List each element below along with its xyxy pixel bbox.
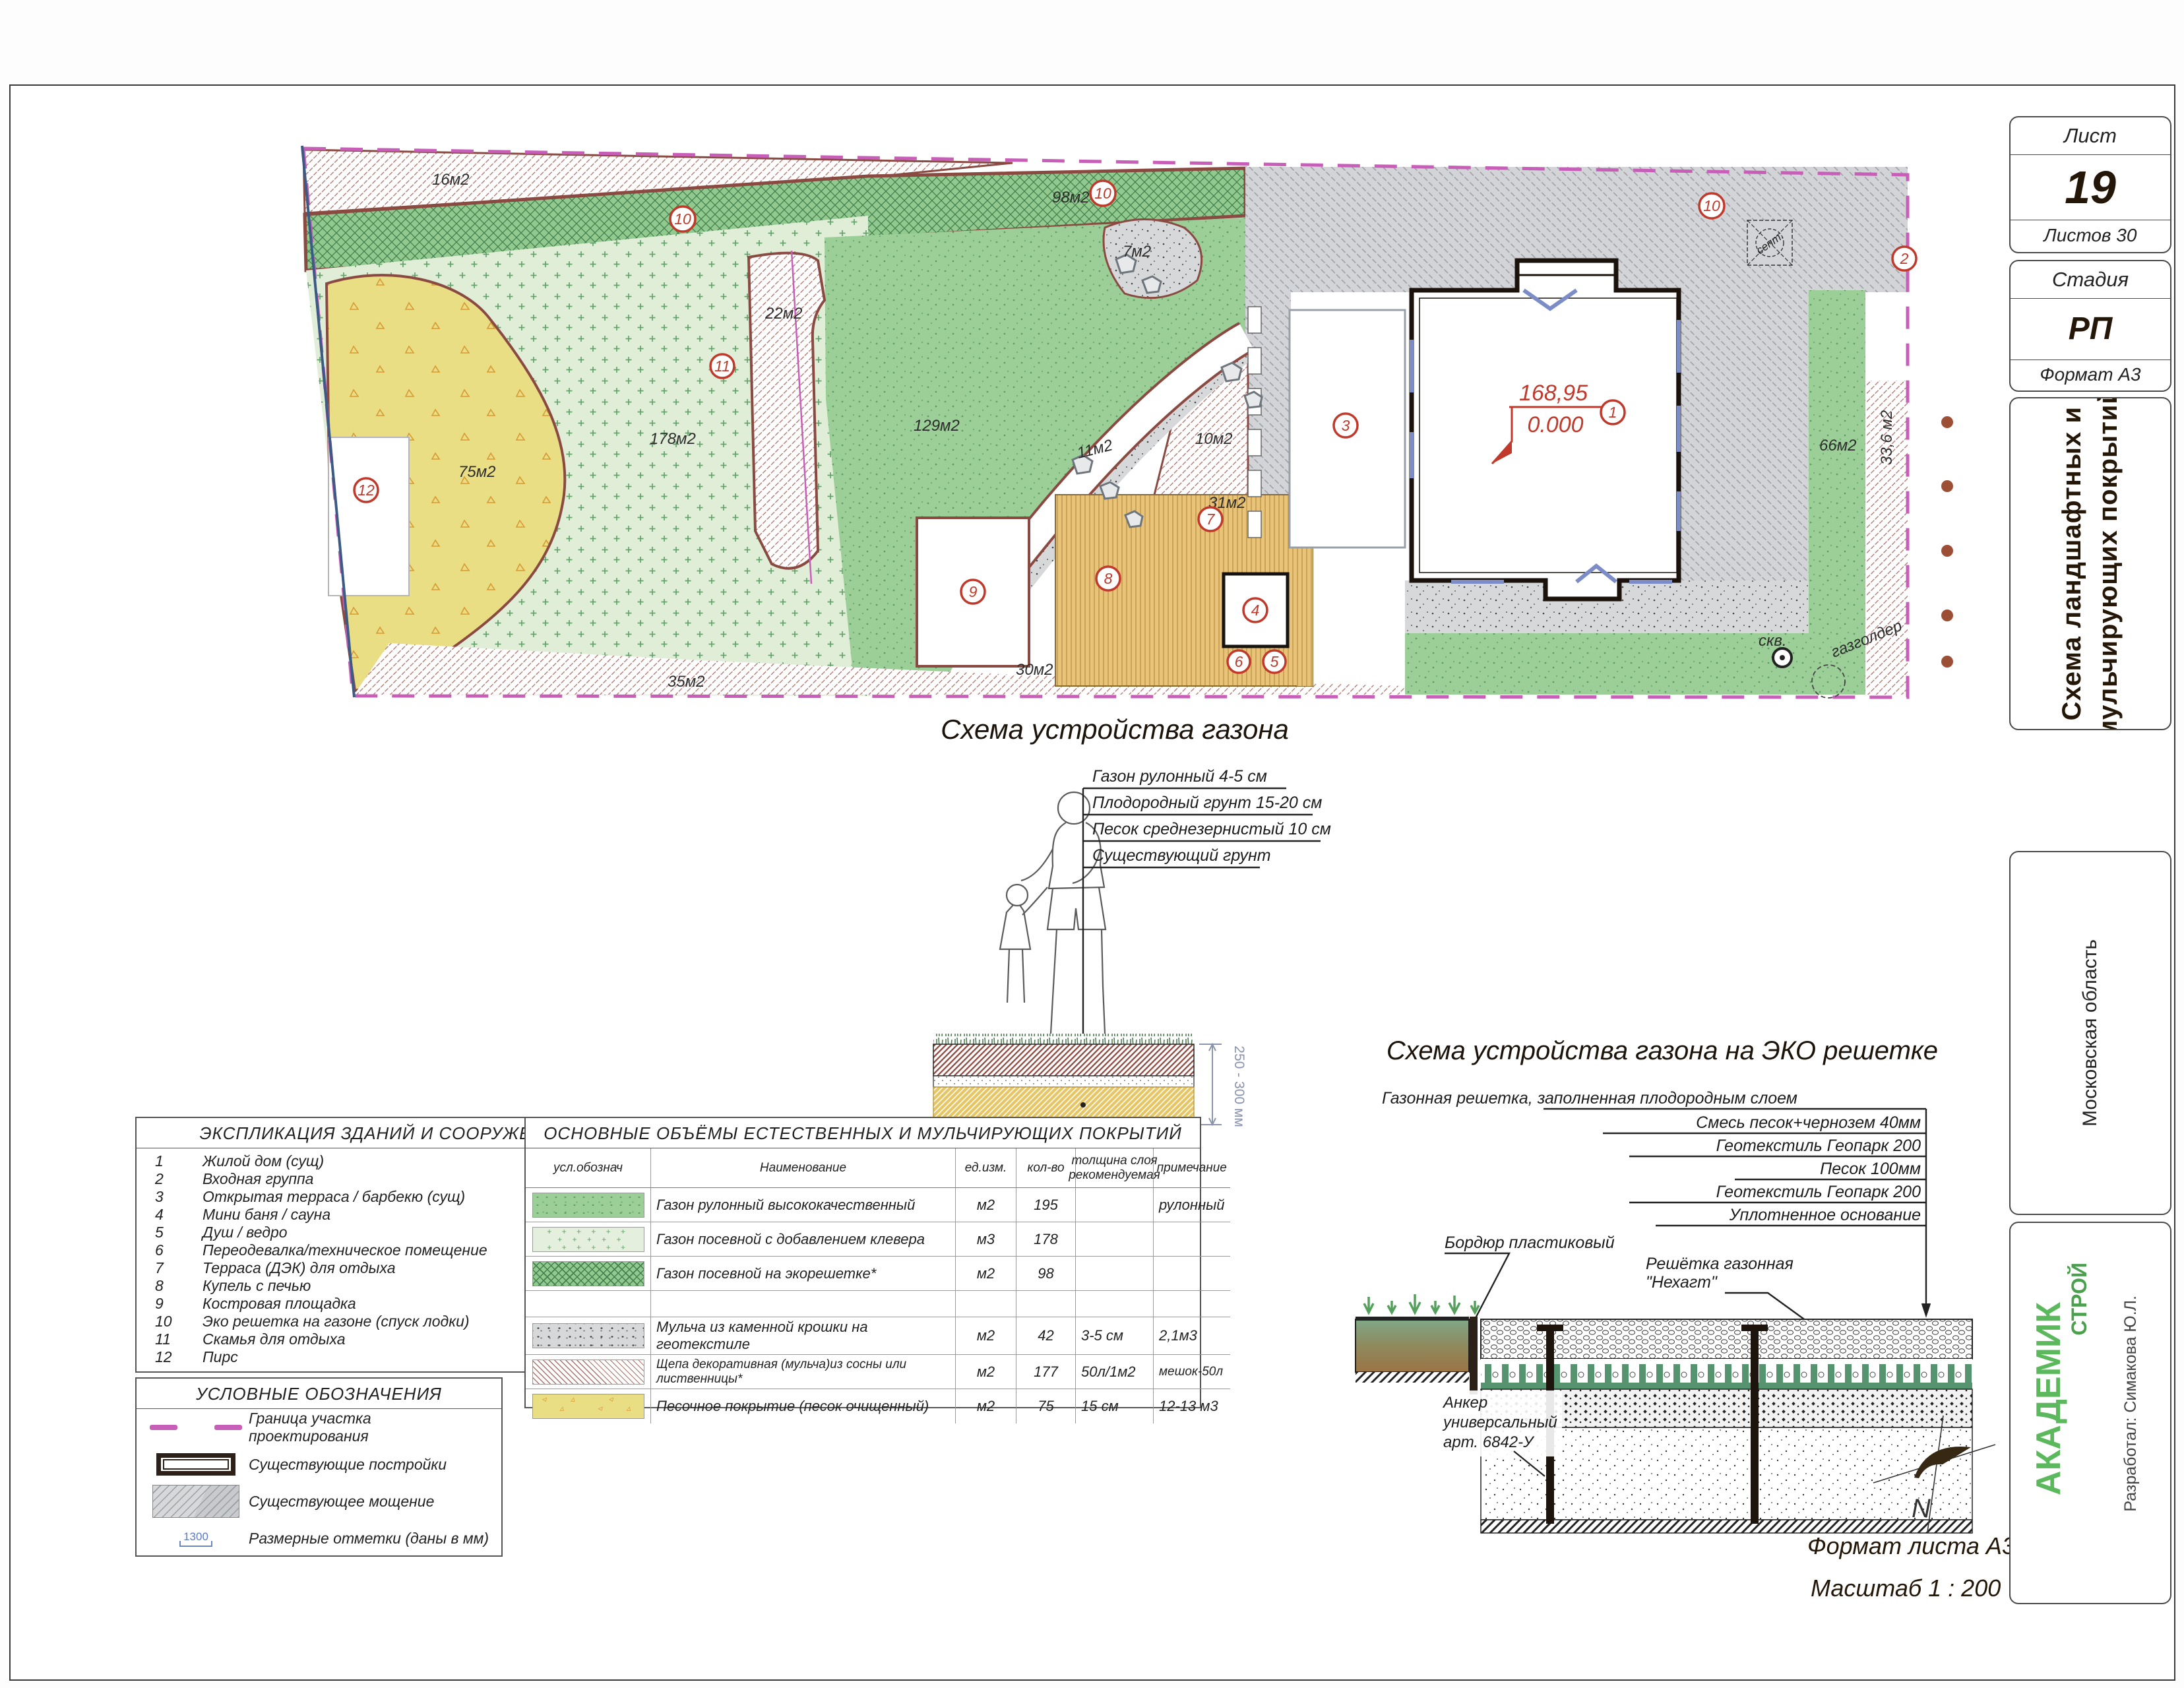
dimension-mark-icon: 1300 <box>143 1530 249 1547</box>
swatch-clover-lawn: + + + + + + + + + + + + + + + + + <box>532 1227 644 1252</box>
row-unit: м2 <box>956 1188 1016 1222</box>
doc-title-line2: мульчирующих покрытий <box>2094 397 2123 730</box>
row-thickness: 50л/1м2 <box>1076 1355 1154 1389</box>
scale-note: Масштаб 1 : 200 <box>1811 1575 2001 1602</box>
svg-text:16м2: 16м2 <box>432 171 470 189</box>
svg-text:129м2: 129м2 <box>914 417 960 435</box>
volumes-table: ОСНОВНЫЕ ОБЪЁМЫ ЕСТЕСТВЕННЫХ И МУЛЬЧИРУЮ… <box>524 1117 1201 1408</box>
legend-item: Существующее мощение <box>137 1483 501 1520</box>
stage-value: РП <box>2011 299 2170 359</box>
svg-text:1: 1 <box>1609 404 1617 421</box>
boundary-dash-icon <box>143 1425 249 1430</box>
svg-text:10: 10 <box>674 210 691 228</box>
swatch-cell <box>526 1355 651 1389</box>
swatch-cell <box>526 1291 651 1317</box>
svg-text:Песок среднезернистый 10 см: Песок среднезернистый 10 см <box>1092 820 1331 838</box>
titleblock-sheet: Лист 19 Листов 30 <box>2009 116 2171 253</box>
svg-text:универсальный: универсальный <box>1442 1414 1557 1431</box>
lawn-section <box>933 1034 1194 1125</box>
svg-text:10: 10 <box>1094 185 1111 202</box>
well-symbol <box>1773 648 1792 667</box>
swatch-cell <box>526 1188 651 1222</box>
row-qty: 178 <box>1016 1222 1076 1257</box>
row-num: 11 <box>155 1330 203 1348</box>
row-num: 10 <box>155 1313 203 1330</box>
legend-item: Существующие постройки <box>137 1446 501 1483</box>
svg-text:30м2: 30м2 <box>1016 661 1053 679</box>
zone-lawn-bottom-right <box>1405 633 1865 695</box>
row-note: 2,1м3 <box>1154 1317 1230 1355</box>
region-label: Московская область <box>2079 939 2102 1127</box>
swatch-stone-mulch <box>532 1323 644 1348</box>
row-num: 1 <box>155 1152 203 1170</box>
row-num: 5 <box>155 1224 203 1241</box>
figure-adult-child <box>1000 792 1106 1034</box>
row-thickness: 3-5 см <box>1076 1317 1154 1355</box>
row-thickness <box>1076 1222 1154 1257</box>
svg-text:Геотекстиль Геопарк 200: Геотекстиль Геопарк 200 <box>1716 1183 1921 1201</box>
legend-label: Существующие постройки <box>249 1456 447 1474</box>
legend-label: Существующее мощение <box>249 1493 434 1511</box>
eco-layer-labels: Газонная решетка, заполненная плодородны… <box>1382 1089 1921 1292</box>
lawn-scheme-title: Схема устройства газона <box>941 714 1289 745</box>
col-header-name: Наименование <box>651 1148 956 1188</box>
tree-dots <box>1941 416 1953 668</box>
existing-paving-icon <box>143 1485 249 1518</box>
site-plan: септ. 168,95 0.000 16м2 98м2 22м2 129м2 … <box>290 122 1972 710</box>
legend-table: УСЛОВНЫЕ ОБОЗНАЧЕНИЯ Граница участка про… <box>135 1377 503 1557</box>
svg-text:Уплотненное основание: Уплотненное основание <box>1729 1206 1921 1224</box>
svg-text:10м2: 10м2 <box>1195 430 1233 448</box>
eco-scheme-title: Схема устройства газона на ЭКО решетке <box>1387 1036 1938 1065</box>
sheets-total: Листов 30 <box>2011 220 2170 251</box>
swatch-cell: + + + + + + + + + + + + + + + + + <box>526 1222 651 1257</box>
col-header-symbol: усл.обознач <box>526 1148 651 1188</box>
svg-text:5: 5 <box>1270 653 1279 670</box>
svg-text:7: 7 <box>1206 511 1216 528</box>
svg-text:Смесь песок+чернозем 40мм: Смесь песок+чернозем 40мм <box>1696 1113 1921 1132</box>
swatch-cell: ◃ ▵ ◃ ▵ ◃ ▵ <box>526 1389 651 1423</box>
row-name: Мини баня / сауна <box>203 1206 330 1224</box>
zone-woodchip-pocket <box>749 253 825 569</box>
zone-paving-right <box>1681 292 1809 584</box>
svg-text:3: 3 <box>1342 417 1350 434</box>
row-thickness: 15 см <box>1076 1389 1154 1423</box>
row-unit <box>956 1291 1016 1317</box>
swatch-ecogrid-lawn <box>532 1261 644 1286</box>
row-name: Переодевалка/техническое помещение <box>203 1241 487 1259</box>
row-name: Газон посевной с добавлением клевера <box>651 1222 956 1257</box>
row-name: Жилой дом (сущ) <box>203 1152 324 1170</box>
svg-text:98м2: 98м2 <box>1052 189 1090 206</box>
svg-text:Плодородный грунт 15-20 см: Плодородный грунт 15-20 см <box>1092 794 1322 812</box>
row-unit: м2 <box>956 1355 1016 1389</box>
row-thickness <box>1076 1291 1154 1317</box>
row-unit: м2 <box>956 1389 1016 1423</box>
existing-building-icon <box>143 1453 249 1476</box>
swatch-rolled-lawn <box>532 1193 644 1218</box>
row-note <box>1154 1257 1230 1291</box>
svg-text:4: 4 <box>1251 602 1260 619</box>
svg-text:Геотекстиль Геопарк 200: Геотекстиль Геопарк 200 <box>1716 1137 1921 1155</box>
row-name: Щепа декоративная (мульча)из сосны или л… <box>651 1355 956 1389</box>
section-dimension-text: 250 - 300 мм <box>1232 1046 1247 1127</box>
format-note: Формат листа А3 <box>1807 1532 2015 1559</box>
row-note <box>1154 1222 1230 1257</box>
svg-text:178м2: 178м2 <box>650 430 696 448</box>
titleblock-doc-title: Схема ландшафтных и мульчирующих покрыти… <box>2009 397 2171 730</box>
row-name: Костровая площадка <box>203 1295 356 1313</box>
sheet-label: Лист <box>2011 117 2170 155</box>
row-num: 4 <box>155 1206 203 1224</box>
row-name: Купель с печью <box>203 1277 311 1295</box>
row-name: Песочное покрытие (песок очищенный) <box>651 1389 956 1423</box>
svg-text:35м2: 35м2 <box>668 673 705 691</box>
format-value: Формат А3 <box>2011 359 2170 389</box>
row-name: Открытая терраса / барбекю (сущ) <box>203 1188 465 1206</box>
svg-text:Бордюр пластиковый: Бордюр пластиковый <box>1445 1234 1615 1252</box>
svg-text:скв.: скв. <box>1759 632 1787 650</box>
svg-text:6: 6 <box>1235 653 1243 670</box>
row-num: 3 <box>155 1188 203 1206</box>
svg-text:Существующий грунт: Существующий грунт <box>1092 846 1271 865</box>
col-header-unit: ед.изм. <box>956 1148 1016 1188</box>
row-num: 7 <box>155 1259 203 1277</box>
row-note <box>1154 1291 1230 1317</box>
row-num: 9 <box>155 1295 203 1313</box>
row-name: Пирс <box>203 1348 238 1366</box>
legend-label: Размерные отметки (даны в мм) <box>249 1530 489 1547</box>
eco-grid-scheme: Схема устройства газона на ЭКО решетке Г… <box>1346 1021 2005 1616</box>
svg-text:0.000: 0.000 <box>1527 412 1583 437</box>
row-thickness <box>1076 1257 1154 1291</box>
row-note: 12-13 м3 <box>1154 1389 1230 1423</box>
svg-text:22м2: 22м2 <box>764 305 803 323</box>
svg-text:33,6 м2: 33,6 м2 <box>1878 410 1896 465</box>
row-unit: м2 <box>956 1317 1016 1355</box>
swatch-sand-cover: ◃ ▵ ◃ ▵ ◃ ▵ <box>532 1394 644 1419</box>
volumes-title: ОСНОВНЫЕ ОБЪЁМЫ ЕСТЕСТВЕННЫХ И МУЛЬЧИРУЮ… <box>526 1118 1200 1148</box>
row-unit: м2 <box>956 1257 1016 1291</box>
row-qty: 195 <box>1016 1188 1076 1222</box>
row-num: 6 <box>155 1241 203 1259</box>
legend-item: 1300 Размерные отметки (даны в мм) <box>137 1520 501 1557</box>
svg-text:"Нехагт": "Нехагт" <box>1646 1273 1718 1292</box>
titleblock-company: АКАДЕМИК СТРОЙ Разработал: Симакова Ю.Л. <box>2009 1222 2171 1604</box>
svg-text:Газон рулонный 4-5 см: Газон рулонный 4-5 см <box>1092 767 1267 786</box>
stage-label: Стадия <box>2011 261 2170 299</box>
row-unit: м3 <box>956 1222 1016 1257</box>
svg-text:арт. 6842-У: арт. 6842-У <box>1443 1433 1535 1451</box>
row-name: Мульча из каменной крошки на геотекстиле <box>651 1317 956 1355</box>
row-name: Терраса (ДЭК) для отдыха <box>203 1259 396 1277</box>
svg-text:Анкер: Анкер <box>1442 1394 1487 1412</box>
sheet-number: 19 <box>2011 155 2170 220</box>
svg-text:10: 10 <box>1703 197 1720 214</box>
company-logo-suffix: СТРОЙ <box>2067 1263 2092 1336</box>
row-qty: 75 <box>1016 1389 1076 1423</box>
col-header-thickness: толщина слоя рекомендуемая <box>1076 1148 1154 1188</box>
svg-text:168,95: 168,95 <box>1519 381 1588 406</box>
section-dimension <box>1199 1044 1222 1125</box>
developer-label: Разработал: Симакова Ю.Л. <box>2121 1296 2140 1512</box>
swatch-cell <box>526 1317 651 1355</box>
row-name: Душ / ведро <box>203 1224 288 1241</box>
doc-title-line1: Схема ландшафтных и <box>2057 406 2087 720</box>
col-header-qty: кол-во <box>1016 1148 1076 1188</box>
swatch-woodchip-mulch <box>532 1360 644 1385</box>
row-note: мешок-50л <box>1154 1355 1230 1389</box>
row-name <box>651 1291 956 1317</box>
legend-label: Граница участка проектирования <box>249 1410 495 1445</box>
titleblock-stage: Стадия РП Формат А3 <box>2009 260 2171 392</box>
svg-text:9: 9 <box>969 583 978 600</box>
lawn-layer-labels: Газон рулонный 4-5 см Плодородный грунт … <box>1092 767 1331 865</box>
legend-item: Граница участка проектирования <box>137 1409 501 1446</box>
svg-text:11: 11 <box>714 358 730 375</box>
row-num: 8 <box>155 1277 203 1295</box>
company-logo: АКАДЕМИК <box>2029 1302 2069 1495</box>
row-qty: 177 <box>1016 1355 1076 1389</box>
svg-text:8: 8 <box>1104 570 1113 587</box>
svg-text:Газонная решетка, заполненная: Газонная решетка, заполненная плодородны… <box>1382 1089 1797 1108</box>
legend-title: УСЛОВНЫЕ ОБОЗНАЧЕНИЯ <box>137 1379 501 1409</box>
row-qty: 42 <box>1016 1317 1076 1355</box>
septic-symbol: септ. <box>1747 220 1792 265</box>
row-num: 2 <box>155 1170 203 1188</box>
titleblock-region: Московская область <box>2009 851 2171 1215</box>
row-name: Входная группа <box>203 1170 313 1188</box>
svg-text:Решётка газонная: Решётка газонная <box>1646 1255 1794 1273</box>
svg-text:Песок 100мм: Песок 100мм <box>1820 1160 1921 1178</box>
svg-text:7м2: 7м2 <box>1123 243 1151 261</box>
row-qty <box>1016 1291 1076 1317</box>
lawn-scheme: Схема устройства газона Газон рулонный 4… <box>917 709 1339 1144</box>
row-name: Эко решетка на газоне (спуск лодки) <box>203 1313 470 1330</box>
row-num: 12 <box>155 1348 203 1366</box>
row-name: Газон посевной на экорешетке* <box>651 1257 956 1291</box>
swatch-cell <box>526 1257 651 1291</box>
row-note: рулонный <box>1154 1188 1230 1222</box>
svg-text:2: 2 <box>1900 250 1909 267</box>
north-letter: N <box>1912 1494 1931 1523</box>
dimension-value: 1300 <box>179 1530 212 1547</box>
svg-text:75м2: 75м2 <box>458 463 496 481</box>
row-name: Газон рулонный высококачественный <box>651 1188 956 1222</box>
row-qty: 98 <box>1016 1257 1076 1291</box>
row-thickness <box>1076 1188 1154 1222</box>
svg-text:12: 12 <box>358 482 375 499</box>
col-header-note: примечание <box>1154 1148 1230 1188</box>
row-name: Скамья для отдыха <box>203 1330 346 1348</box>
svg-text:66м2: 66м2 <box>1819 437 1857 454</box>
